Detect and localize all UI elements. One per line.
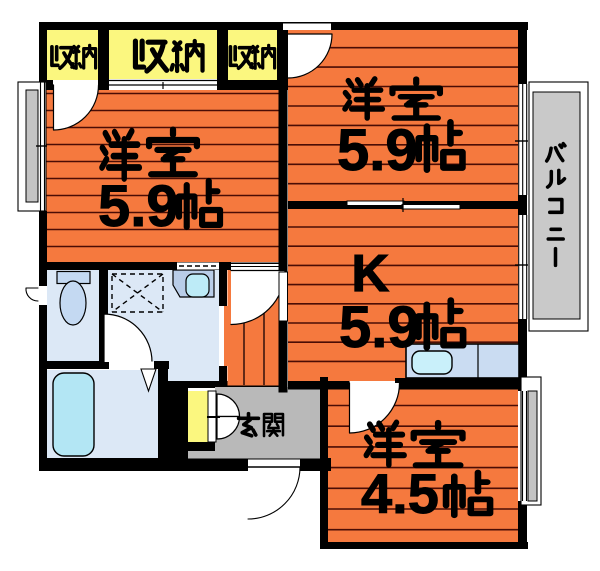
svg-text:5.9: 5.9 [98,174,179,239]
svg-text:5.9: 5.9 [337,118,418,183]
svg-text:5.9: 5.9 [339,295,420,360]
svg-text:4.5: 4.5 [361,462,439,525]
